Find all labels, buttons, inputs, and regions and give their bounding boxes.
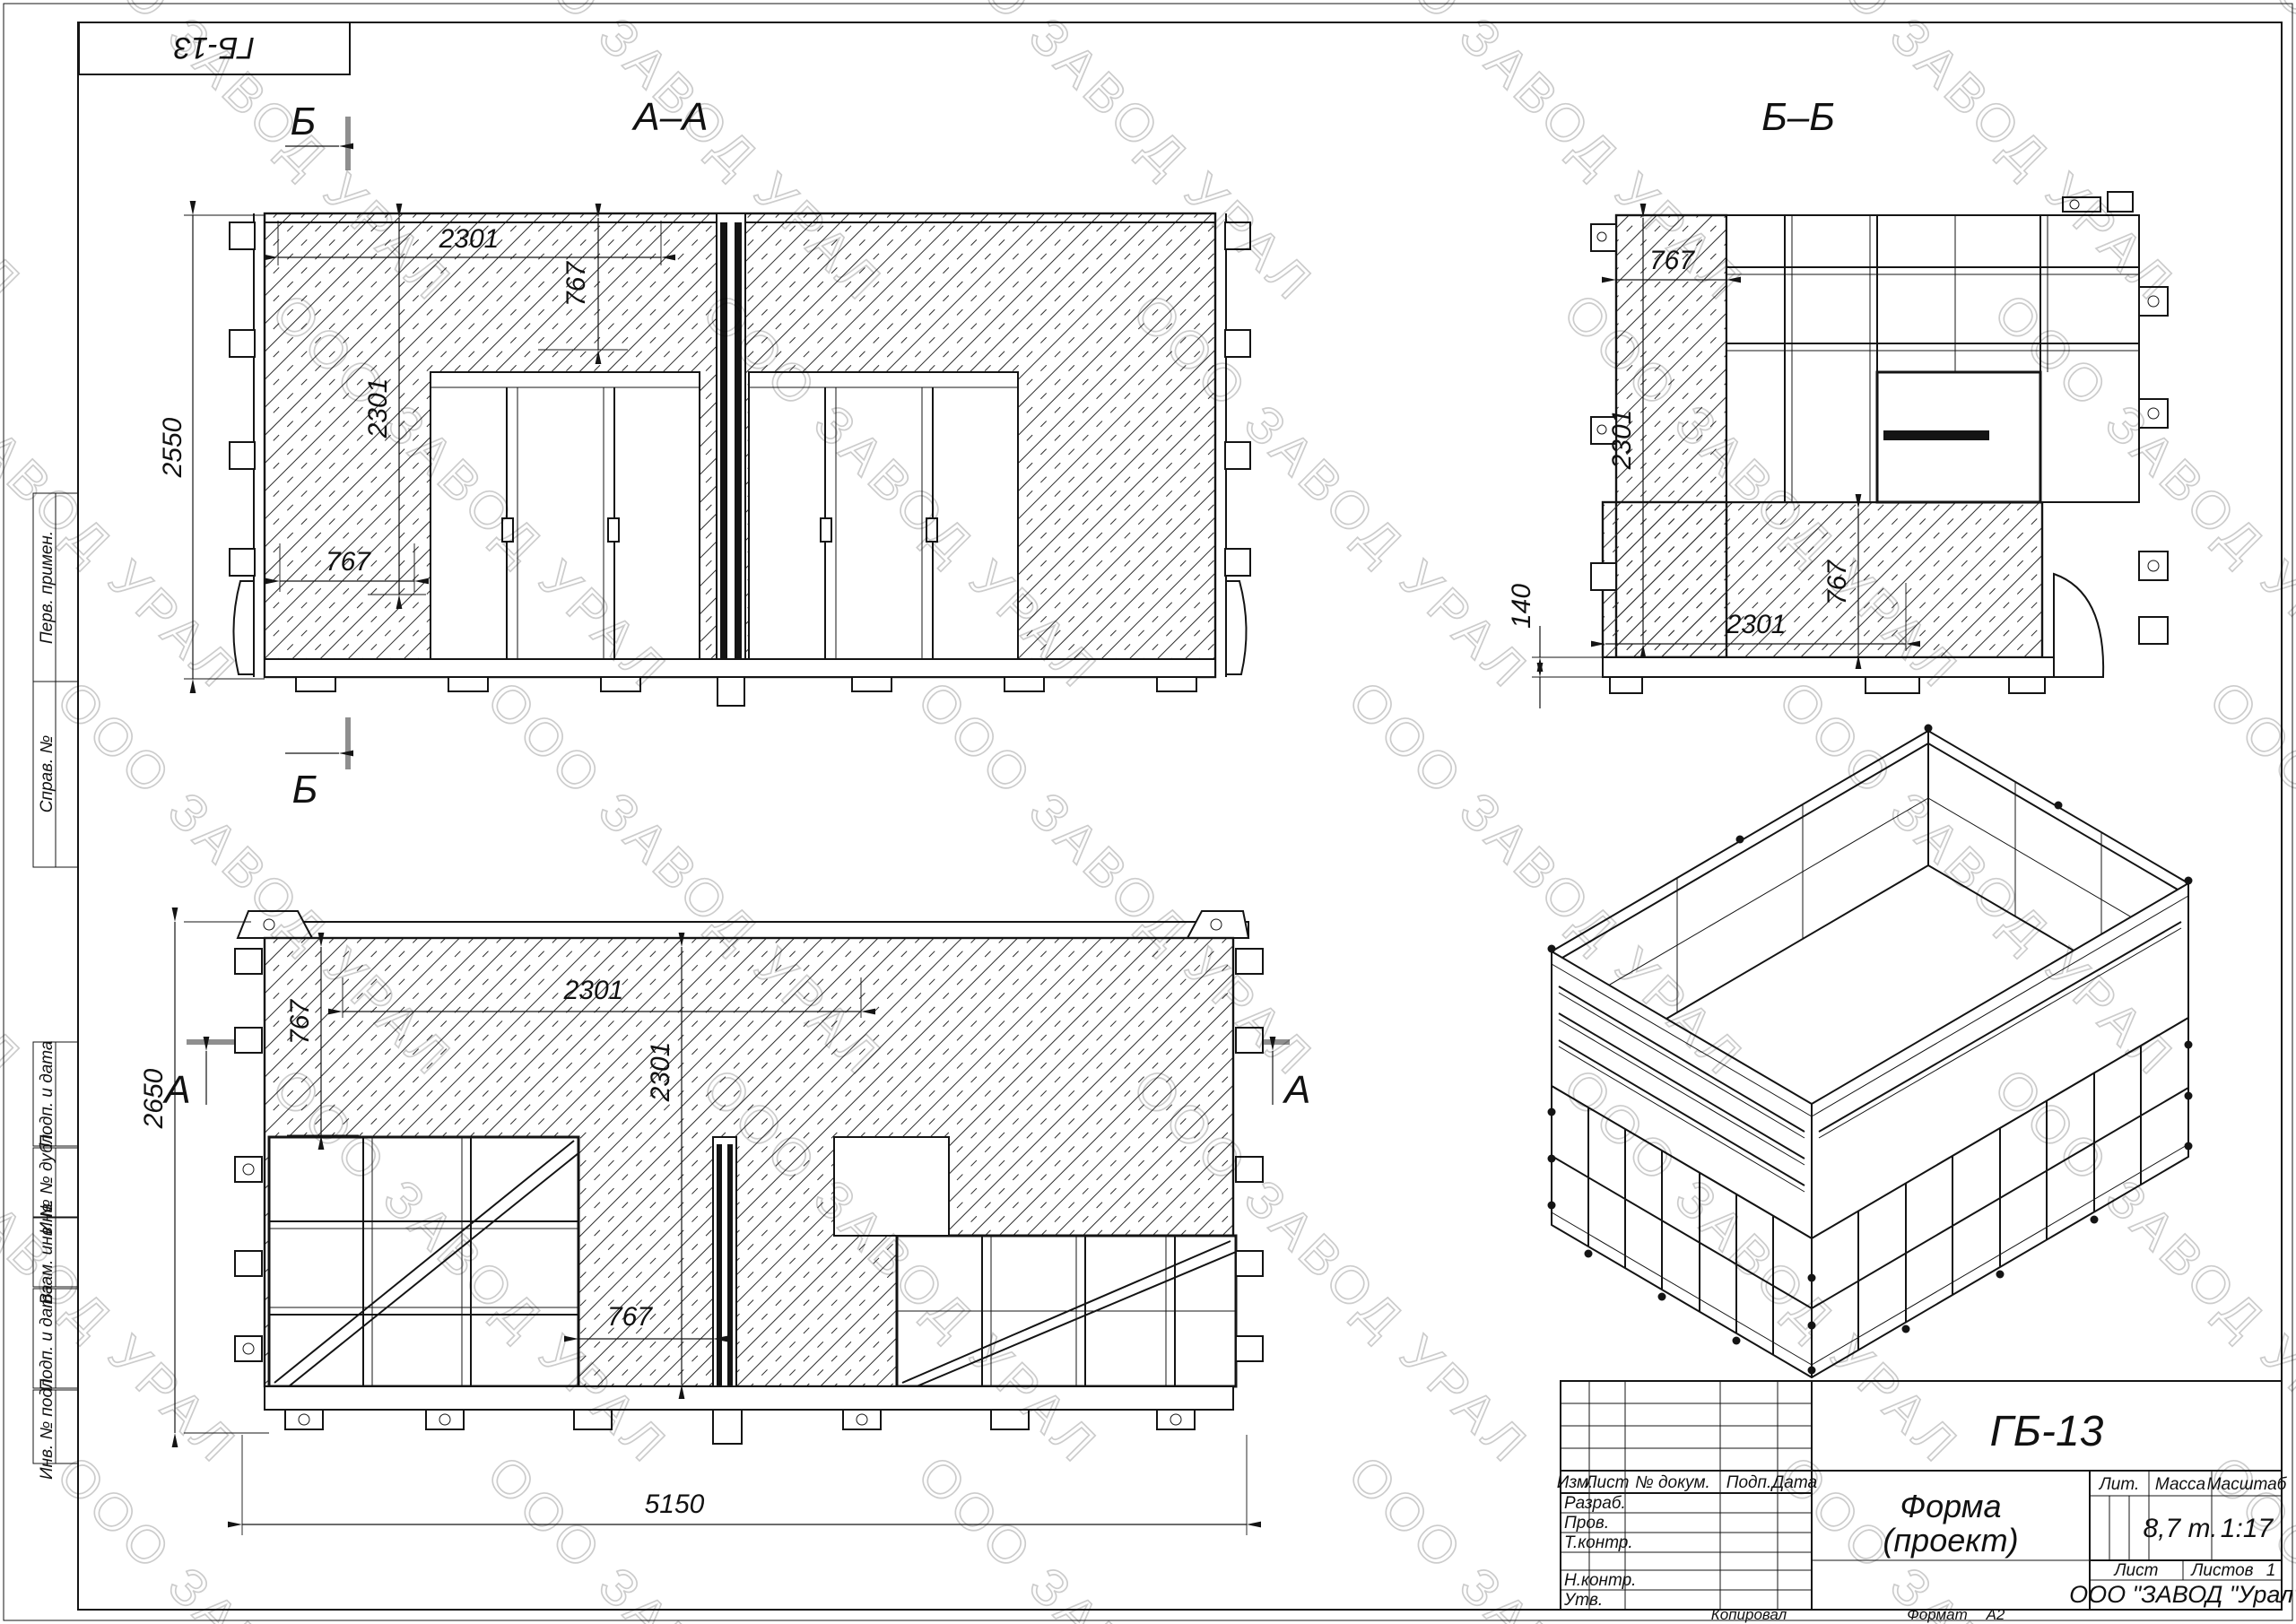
tb-row-prov: Пров. bbox=[1564, 1514, 1609, 1533]
watermark-text: ООО ЗАВОД УРАЛ bbox=[0, 1445, 33, 1624]
svg-text:Справ. №: Справ. № bbox=[38, 735, 57, 812]
watermark-text: ООО ЗАВОД УРАЛ bbox=[1337, 1445, 1756, 1624]
dim-front-767-left: 767 bbox=[285, 999, 315, 1045]
dim-aa-767-bottom: 767 bbox=[326, 547, 371, 577]
dim-front-2301-center: 2301 bbox=[646, 1042, 675, 1103]
view-isometric bbox=[1548, 725, 2193, 1378]
aa-body bbox=[230, 213, 1250, 706]
dim-aa-767-right: 767 bbox=[561, 261, 591, 307]
tb-mass-value: 8,7 т. bbox=[2143, 1514, 2217, 1543]
tb-row-utv: Утв. bbox=[1563, 1591, 1603, 1610]
tb-sheets-label: Листов bbox=[2189, 1561, 2253, 1580]
tb-row-nkontr: Н.контр. bbox=[1564, 1571, 1636, 1590]
dim-aa-2301-top: 2301 bbox=[439, 224, 500, 254]
dim-bb-2301-bottom: 2301 bbox=[1726, 610, 1787, 639]
svg-text:Перв. примен.: Перв. примен. bbox=[38, 531, 57, 644]
aa-left-clamps bbox=[230, 213, 255, 677]
tb-lit-label: Лит. bbox=[2098, 1475, 2140, 1494]
section-bb-label: Б–Б bbox=[1761, 95, 1835, 139]
copied-label: Копировал bbox=[1711, 1606, 1787, 1623]
aa-center-divider bbox=[717, 213, 745, 677]
tb-col-list: Лист bbox=[1584, 1473, 1630, 1492]
tb-sheet-label: Лист bbox=[2113, 1561, 2159, 1580]
format-value: А2 bbox=[1986, 1606, 2005, 1623]
dim-front-2650: 2650 bbox=[139, 1068, 169, 1129]
tb-sheets-value: 1 bbox=[2266, 1561, 2276, 1580]
dim-front-767-center: 767 bbox=[607, 1302, 653, 1332]
svg-text:Инв. № подл.: Инв. № подл. bbox=[38, 1374, 57, 1480]
tb-product-name-1: Форма bbox=[1900, 1488, 2002, 1524]
front-left-clamps bbox=[235, 949, 262, 1361]
tb-col-podp: Подп. bbox=[1726, 1473, 1772, 1492]
title-block-sheet-row: Лист Листов 1 ООО "ЗАВОД "Урал" bbox=[2069, 1560, 2296, 1608]
dim-aa-2550: 2550 bbox=[158, 417, 187, 478]
watermark-text: ООО ЗАВОД УРАЛ bbox=[0, 0, 33, 314]
watermark-text: ООО ЗАВОД УРАЛ bbox=[476, 1445, 895, 1624]
tb-row-razrab: Разраб. bbox=[1564, 1494, 1626, 1513]
drawing-sheet: { "sheet": { "watermark": { "text": "ООО… bbox=[0, 0, 2296, 1624]
drawing-canvas: ГБ-13 Перв. примен. Справ. № Подп. и дат… bbox=[0, 0, 2296, 1624]
view-front: А А bbox=[139, 911, 1310, 1535]
dim-front-5150: 5150 bbox=[645, 1489, 705, 1519]
watermark-text: ООО ЗАВОД УРАЛ bbox=[46, 1445, 465, 1624]
section-marker-b-bottom-label: Б bbox=[292, 768, 318, 812]
tb-mass-label: Масса bbox=[2155, 1475, 2205, 1494]
tb-doc-number: ГБ-13 bbox=[1990, 1408, 2104, 1455]
tb-row-tkontr: Т.контр. bbox=[1564, 1533, 1633, 1552]
section-marker-a-left: А bbox=[161, 1042, 240, 1112]
watermark-text: ООО ЗАВОД УРАЛ bbox=[907, 1445, 1326, 1624]
watermark-text: ООО ЗАВОД УРАЛ bbox=[46, 670, 465, 1089]
front-center-divider bbox=[713, 1137, 736, 1386]
dim-bb-140: 140 bbox=[1507, 584, 1536, 629]
section-marker-b-bottom: Б bbox=[285, 717, 348, 812]
watermark-text: ООО ЗАВОД УРАЛ bbox=[1337, 0, 1756, 314]
tb-company: ООО "ЗАВОД "Урал" bbox=[2069, 1581, 2296, 1608]
dim-front-2301-top: 2301 bbox=[563, 976, 624, 1005]
tb-col-dokum: № докум. bbox=[1635, 1473, 1710, 1492]
dim-bb-2301-left: 2301 bbox=[1607, 410, 1637, 471]
watermark-text: ООО ЗАВОД УРАЛ bbox=[0, 670, 33, 1089]
